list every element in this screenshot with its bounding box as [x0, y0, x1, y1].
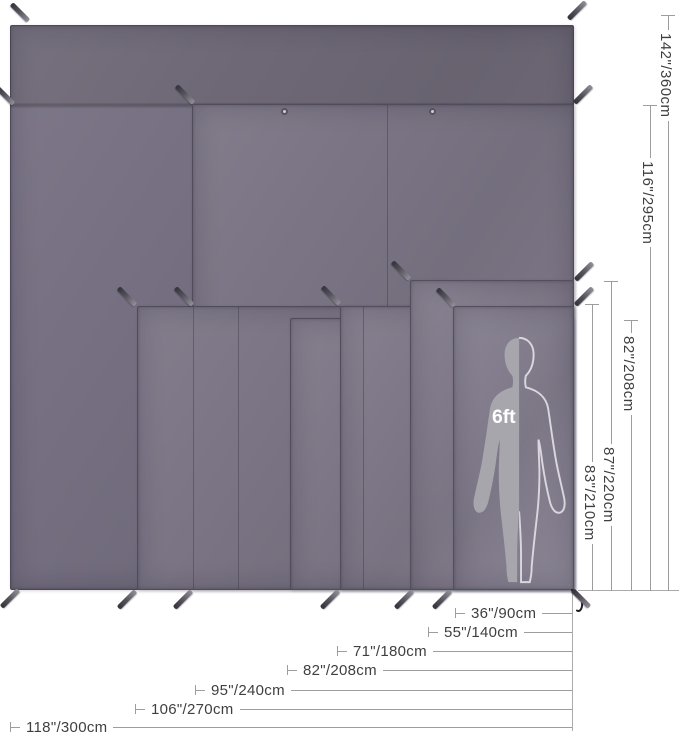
dim-cap: [585, 304, 599, 305]
dim-line: [288, 670, 297, 671]
width-dim-82in: 82"/208cm: [287, 662, 572, 678]
grommet-icon: [281, 108, 288, 115]
seam-line: [238, 307, 239, 589]
dim-line: [11, 727, 20, 728]
width-dim-label: 106"/270cm: [145, 701, 240, 718]
figure-height-label: 6ft: [492, 406, 516, 428]
tent-stake-icon: [573, 84, 594, 105]
dim-cap: [604, 281, 618, 282]
seam-line: [363, 307, 364, 589]
dim-cap: [624, 320, 638, 321]
dim-line: [136, 709, 145, 710]
dim-line: [592, 304, 593, 591]
width-dim-label: 71"/180cm: [347, 643, 433, 660]
height-dim-label: 87"/220cm: [600, 444, 617, 526]
tent-stake-icon: [567, 0, 588, 21]
width-dim-71in: 71"/180cm: [337, 643, 572, 659]
dim-line: [433, 651, 572, 652]
figure-filled-half: [474, 338, 565, 582]
dim-cap: [643, 105, 657, 106]
width-dim-55in: 55"/140cm: [428, 624, 572, 640]
dim-line: [542, 613, 572, 614]
tent-stake-icon: [10, 2, 31, 23]
dim-line: [196, 690, 205, 691]
dim-line: [338, 651, 347, 652]
dim-line: [611, 281, 612, 591]
width-dim-label: 82"/208cm: [297, 662, 383, 679]
width-dim-118in: 118"/300cm: [10, 719, 572, 735]
width-dim-label: 118"/300cm: [20, 719, 113, 736]
tent-stake-icon: [432, 589, 453, 610]
dim-line: [291, 690, 572, 691]
height-extension-line: [578, 590, 679, 591]
tent-stake-icon: [0, 588, 20, 609]
height-dim-label: 116"/295cm: [639, 158, 656, 247]
width-dim-95in: 95"/240cm: [195, 682, 572, 698]
dim-line: [113, 727, 572, 728]
tent-stake-icon: [320, 589, 341, 610]
tent-stake-icon: [394, 589, 415, 610]
dim-line: [429, 632, 438, 633]
height-dim-label: 83"/210cm: [581, 462, 598, 544]
height-dim-label: 142"/360cm: [657, 30, 674, 121]
tent-stake-icon: [574, 261, 595, 282]
width-dim-label: 95"/240cm: [205, 682, 291, 699]
width-dim-label: 36"/90cm: [465, 605, 542, 622]
tent-stake-icon: [117, 589, 138, 610]
width-dim-label: 55"/140cm: [438, 624, 524, 641]
tarp-size-diagram: 6ft 142"/360cm 116"/295cm 82"/208cm 87"/…: [0, 0, 679, 743]
height-dim-label: 82"/208cm: [620, 333, 637, 415]
dim-line: [383, 670, 572, 671]
dim-cap: [661, 15, 675, 16]
width-dim-106in: 106"/270cm: [135, 701, 572, 717]
seam-line: [193, 307, 194, 589]
dim-line: [524, 632, 572, 633]
dim-line: [456, 613, 465, 614]
grommet-icon: [429, 108, 436, 115]
width-extension-line: [572, 593, 573, 731]
dim-line: [240, 709, 572, 710]
human-scale-figure: 6ft: [463, 334, 581, 586]
tent-stake-icon: [173, 589, 194, 610]
width-dim-36in: 36"/90cm: [455, 605, 572, 621]
